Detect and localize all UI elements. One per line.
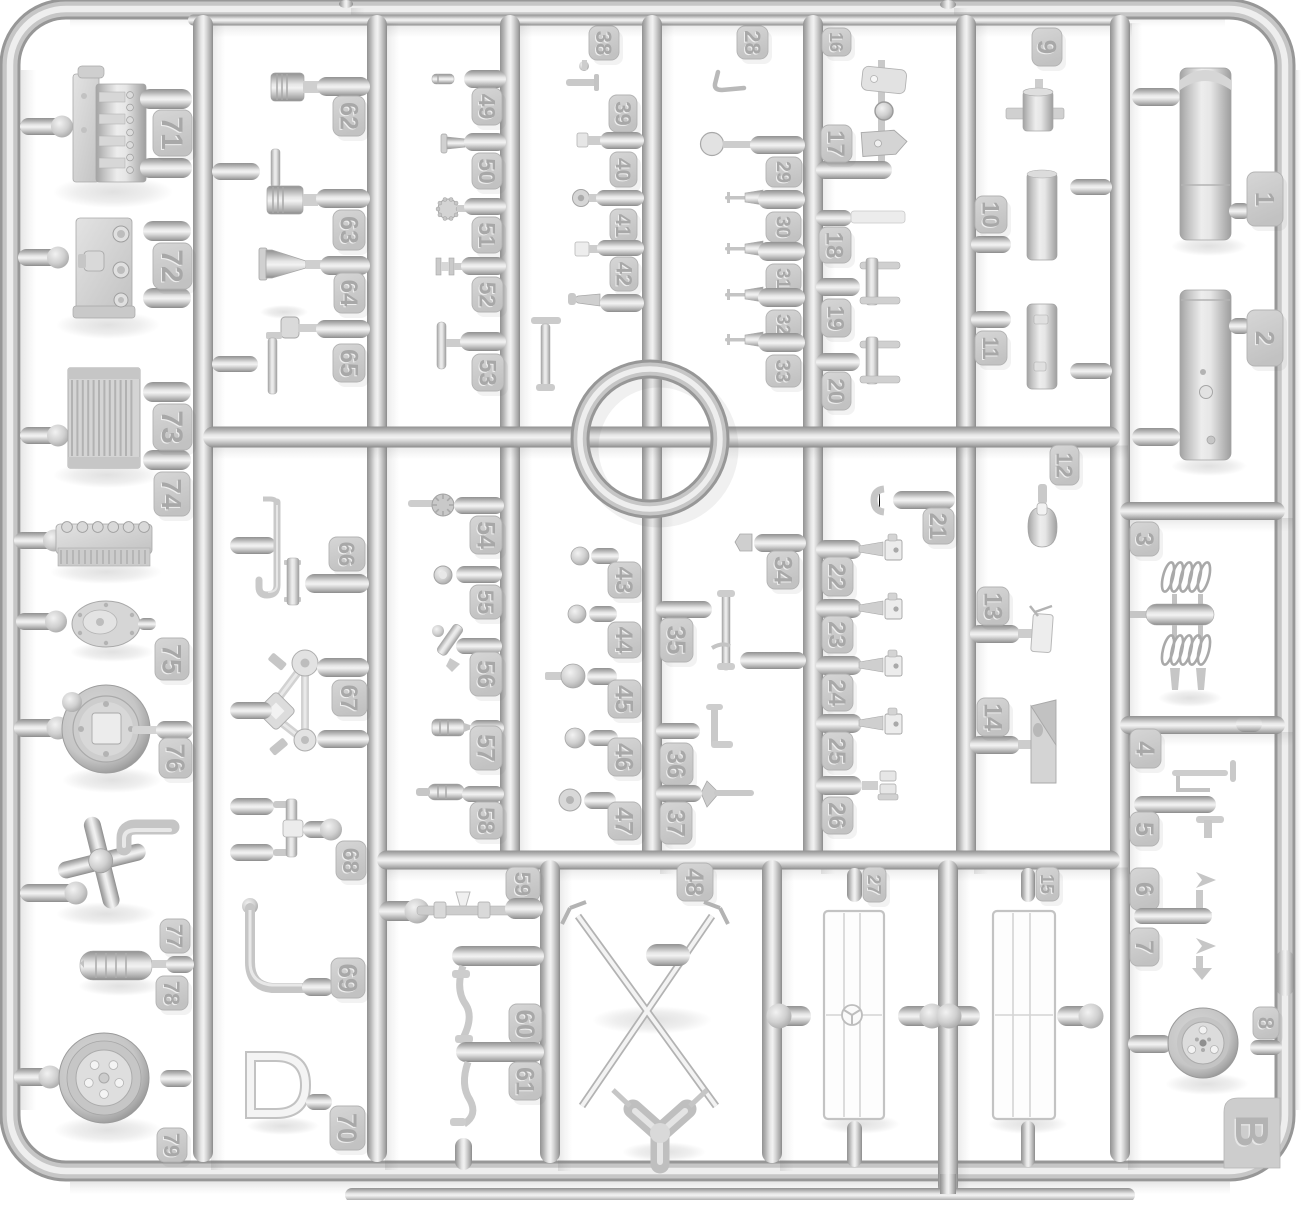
svg-text:18: 18	[821, 232, 848, 259]
svg-text:33: 33	[771, 359, 794, 382]
svg-text:36: 36	[662, 750, 692, 779]
svg-text:55: 55	[473, 590, 498, 614]
svg-text:28: 28	[740, 30, 765, 54]
svg-text:31: 31	[772, 268, 793, 290]
svg-text:60: 60	[511, 1010, 541, 1039]
svg-text:54: 54	[471, 521, 499, 549]
svg-text:42: 42	[611, 262, 636, 286]
svg-text:73: 73	[155, 410, 188, 443]
svg-text:79: 79	[159, 1133, 184, 1157]
svg-text:27: 27	[864, 874, 884, 894]
svg-text:47: 47	[610, 807, 638, 835]
svg-text:3: 3	[1130, 532, 1158, 546]
svg-text:6: 6	[1130, 882, 1158, 896]
svg-text:41: 41	[611, 214, 634, 238]
svg-text:68: 68	[338, 848, 364, 874]
svg-text:72: 72	[155, 249, 188, 282]
svg-text:14: 14	[978, 703, 1006, 731]
svg-text:15: 15	[1037, 874, 1057, 894]
svg-text:30: 30	[772, 216, 794, 238]
svg-text:39: 39	[610, 101, 635, 125]
svg-text:58: 58	[472, 807, 499, 834]
svg-text:67: 67	[335, 685, 362, 712]
svg-text:40: 40	[611, 158, 634, 181]
svg-text:13: 13	[978, 592, 1006, 620]
svg-text:63: 63	[334, 216, 362, 244]
svg-text:8: 8	[1253, 1017, 1278, 1029]
svg-text:32: 32	[772, 314, 793, 335]
svg-text:19: 19	[823, 305, 849, 331]
svg-text:16: 16	[826, 32, 846, 52]
svg-text:2: 2	[1250, 331, 1280, 345]
svg-text:65: 65	[334, 349, 362, 377]
svg-text:76: 76	[161, 744, 191, 773]
svg-text:10: 10	[977, 201, 1004, 228]
svg-text:17: 17	[822, 130, 849, 157]
svg-text:52: 52	[474, 282, 500, 308]
svg-text:77: 77	[162, 924, 187, 948]
svg-text:75: 75	[157, 644, 187, 674]
svg-text:70: 70	[332, 1113, 362, 1143]
svg-text:7: 7	[1130, 940, 1158, 954]
svg-text:49: 49	[474, 94, 500, 120]
svg-text:53: 53	[474, 359, 501, 386]
svg-text:45: 45	[610, 685, 638, 713]
svg-text:48: 48	[680, 868, 708, 896]
svg-text:9: 9	[1032, 40, 1062, 54]
svg-text:50: 50	[474, 158, 500, 184]
svg-text:4: 4	[1130, 741, 1160, 756]
svg-text:11: 11	[978, 336, 1003, 359]
svg-text:23: 23	[823, 621, 850, 648]
svg-text:B: B	[1226, 1114, 1278, 1147]
svg-text:26: 26	[823, 802, 850, 829]
svg-text:61: 61	[511, 1067, 539, 1095]
svg-text:64: 64	[335, 280, 362, 307]
svg-text:29: 29	[772, 161, 794, 183]
svg-text:12: 12	[1052, 452, 1078, 478]
svg-text:22: 22	[823, 563, 850, 590]
svg-text:62: 62	[334, 102, 362, 130]
svg-text:34: 34	[768, 556, 796, 584]
svg-text:1: 1	[1250, 192, 1280, 206]
svg-text:43: 43	[610, 567, 637, 594]
svg-text:35: 35	[662, 626, 692, 655]
svg-text:38: 38	[591, 31, 616, 55]
svg-text:57: 57	[471, 734, 499, 762]
svg-text:69: 69	[333, 964, 363, 993]
svg-text:46: 46	[610, 743, 638, 771]
svg-text:51: 51	[474, 222, 500, 248]
svg-text:59: 59	[510, 872, 535, 896]
svg-text:5: 5	[1130, 822, 1158, 836]
svg-text:56: 56	[471, 660, 499, 688]
svg-text:24: 24	[823, 679, 850, 706]
svg-text:37: 37	[661, 809, 689, 837]
svg-text:25: 25	[823, 738, 850, 765]
svg-text:21: 21	[924, 513, 951, 540]
svg-text:74: 74	[156, 478, 187, 510]
svg-text:71: 71	[155, 116, 188, 149]
svg-text:20: 20	[824, 378, 850, 404]
svg-text:44: 44	[610, 627, 637, 654]
svg-text:78: 78	[159, 981, 184, 1005]
svg-text:66: 66	[334, 542, 359, 566]
